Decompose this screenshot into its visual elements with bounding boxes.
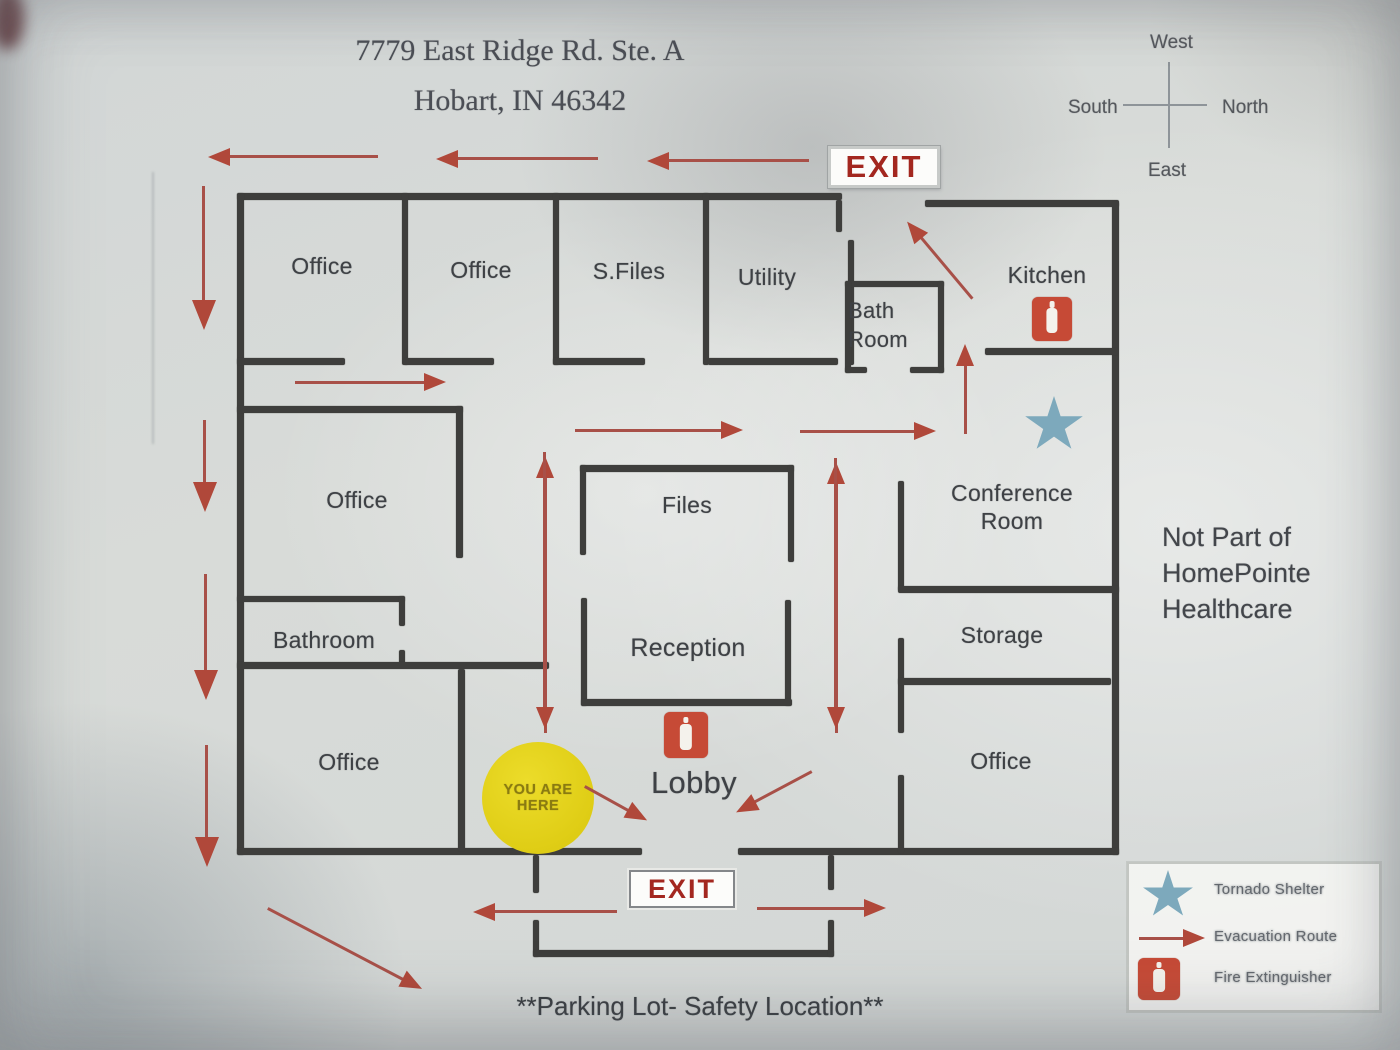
wall-segment (399, 596, 405, 626)
wall-segment (237, 662, 549, 669)
fire-extinguisher-icon-lobby (664, 712, 708, 758)
wall-segment (533, 950, 834, 957)
room-label-utility: Utility (707, 264, 827, 291)
wall-segment (828, 855, 834, 890)
wall-segment (580, 465, 794, 472)
wall-segment (828, 920, 834, 957)
wall-segment (738, 848, 1119, 855)
you-are-here-line2: HERE (517, 798, 559, 814)
wall-segment (788, 465, 794, 562)
wall-segment (785, 600, 791, 706)
room-label-kitchen: Kitchen (987, 262, 1107, 289)
compass-south: South (1068, 97, 1118, 119)
wall-segment (938, 281, 944, 373)
wall-segment (580, 465, 586, 555)
address-line-1: 7779 East Ridge Rd. Ste. A (280, 34, 760, 68)
address-line-2: Hobart, IN 46342 (280, 84, 760, 118)
compass-horizontal-line (1123, 104, 1207, 106)
compass-vertical-line (1168, 62, 1170, 148)
room-label-conference-line2: Room (932, 507, 1092, 535)
wall-segment (836, 200, 842, 232)
room-label-office-mid: Office (297, 487, 417, 514)
room-label-storage: Storage (942, 622, 1062, 649)
wall-segment (898, 638, 904, 733)
room-label-conference-line1: Conference (932, 479, 1092, 507)
wall-segment (237, 596, 405, 602)
floor-plan: 7779 East Ridge Rd. Ste. A Hobart, IN 46… (0, 0, 1400, 1050)
wall-segment (898, 586, 1119, 593)
wall-segment (458, 669, 465, 851)
wall-segment (898, 678, 1111, 685)
wall-segment (237, 193, 842, 200)
exit-sign-top: EXIT (828, 146, 940, 188)
wall-segment (708, 358, 838, 365)
wall-segment (456, 406, 463, 558)
not-part-line3: Healthcare (1162, 591, 1311, 627)
not-part-line2: HomePointe (1162, 555, 1311, 591)
wall-segment (845, 281, 944, 287)
evacuation-map-photo: 7779 East Ridge Rd. Ste. A Hobart, IN 46… (0, 0, 1400, 1050)
room-label-lobby: Lobby (634, 765, 754, 801)
parking-safety-note: **Parking Lot- Safety Location** (420, 991, 980, 1022)
wall-segment (581, 598, 587, 706)
fire-extinguisher-icon-kitchen (1032, 297, 1072, 341)
exit-sign-bottom: EXIT (629, 870, 735, 908)
not-part-note: Not Part of HomePointe Healthcare (1162, 519, 1311, 627)
wall-segment (533, 855, 539, 893)
room-label-s-files: S.Files (569, 258, 689, 285)
room-label-bath-room-line1: Bath (848, 296, 936, 325)
wall-segment (1112, 202, 1119, 855)
legend-tornado-star-icon (1142, 870, 1194, 920)
wall-segment (898, 775, 904, 853)
not-part-line1: Not Part of (1162, 519, 1311, 555)
you-are-here-line1: YOU ARE (503, 782, 572, 798)
room-label-office-top-1: Office (262, 253, 382, 280)
wall-segment (985, 348, 1118, 355)
wall-segment (237, 193, 244, 855)
legend-fire-extinguisher-icon (1138, 958, 1180, 1000)
tornado-shelter-star-icon (1024, 396, 1084, 454)
wall-segment (910, 367, 944, 373)
evacuation-arrow (917, 234, 972, 299)
legend-evacuation-label: Evacuation Route (1214, 928, 1337, 945)
wall-segment (553, 193, 559, 365)
compass-west: West (1150, 32, 1193, 54)
wall-segment (237, 848, 642, 855)
compass-east: East (1148, 160, 1186, 182)
wall-segment (237, 358, 345, 365)
room-label-conference: Conference Room (932, 479, 1092, 535)
legend-tornado-label: Tornado Shelter (1214, 881, 1324, 898)
room-label-bath-room: Bath Room (848, 296, 936, 354)
compass-north: North (1222, 97, 1268, 119)
wall-segment (404, 358, 494, 365)
legend-box: Tornado Shelter Evacuation Route Fire Ex… (1127, 862, 1381, 1012)
wall-segment (237, 406, 463, 413)
room-label-reception: Reception (613, 634, 763, 663)
room-label-office-bottom-left: Office (289, 749, 409, 776)
wall-segment (581, 699, 792, 706)
evacuation-arrow (750, 772, 812, 805)
wall-segment (898, 481, 904, 591)
wall-segment (402, 193, 408, 365)
room-label-bath-room-line2: Room (848, 325, 936, 354)
room-label-office-bottom-right: Office (941, 748, 1061, 775)
room-label-bathroom: Bathroom (264, 627, 384, 654)
wall-segment (845, 367, 867, 373)
wall-segment (925, 200, 1119, 207)
wall-segment (553, 358, 645, 365)
evacuation-arrow (268, 908, 408, 981)
room-label-files: Files (627, 492, 747, 519)
legend-fire-label: Fire Extinguisher (1214, 969, 1332, 986)
room-label-office-top-2: Office (421, 257, 541, 284)
you-are-here-marker: YOU ARE HERE (482, 742, 594, 854)
